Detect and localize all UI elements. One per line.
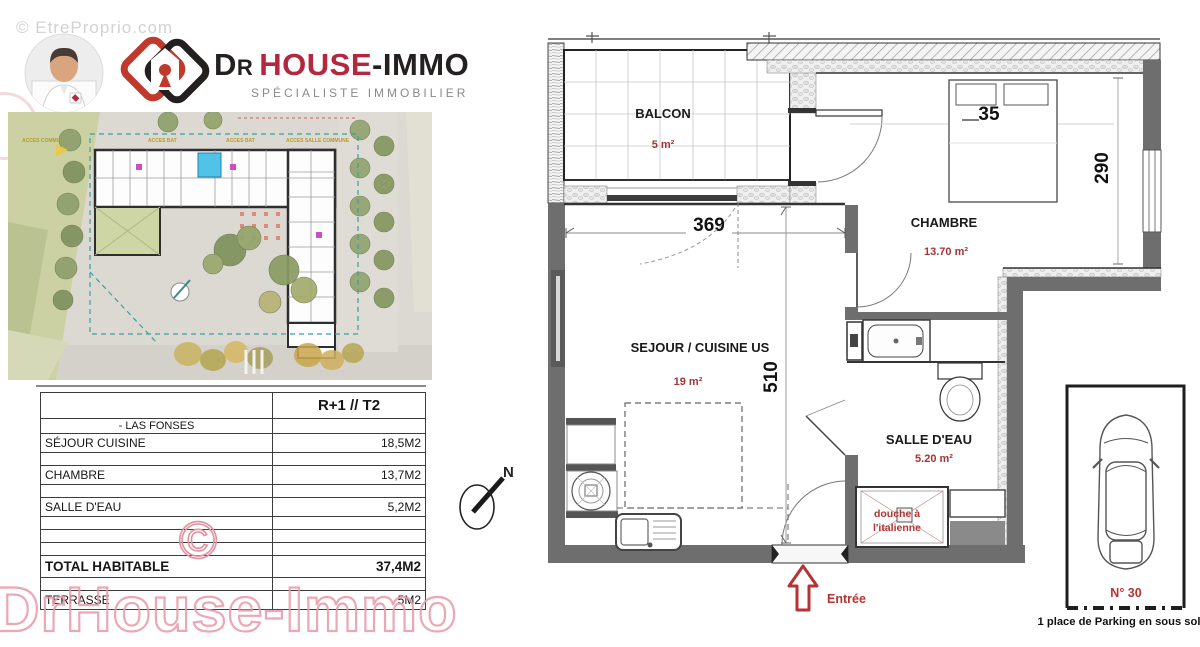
bed — [949, 80, 1057, 202]
dim-290: 290 — [1092, 152, 1113, 184]
row-sejour-label: SÉJOUR CUISINE — [41, 434, 273, 453]
bathroom-door — [806, 416, 845, 455]
watermark-drhouse: DrHouse-Immo — [0, 565, 512, 647]
brand-suffix: -IMMO — [372, 47, 469, 82]
site-label-salle-commune: ACCES SALLE COMMUNE — [286, 138, 350, 144]
brand-prefix: Dr — [214, 47, 253, 82]
site-label-bat1: ACCES BAT — [148, 138, 177, 144]
dim-369: 369 — [693, 215, 725, 236]
compass-north-label: N — [503, 464, 514, 481]
parking-space: N° 30 1 place de Parking en sous sol — [1038, 386, 1200, 628]
watermark-etreproprio: © EtreProprio.com — [16, 18, 173, 38]
entrance-opening — [772, 545, 848, 563]
shower-note-2: l'italienne — [873, 522, 921, 534]
living-label: SEJOUR / CUISINE US — [631, 340, 770, 355]
brand-name: DrHOUSE-IMMO — [214, 47, 469, 83]
shower: douche à l'italienne — [856, 487, 948, 547]
site-plan: ACCES COMMUN ACCES BAT ACCES BAT ACCES S… — [8, 112, 432, 380]
agent-avatar — [24, 33, 104, 113]
entrance-label: Entrée — [827, 592, 866, 606]
row-salledeau-value: 5,2M2 — [273, 498, 426, 517]
brand-subtitle: SPÉCIALISTE IMMOBILIER — [251, 86, 469, 100]
bedroom-balcony-door — [816, 110, 882, 116]
brand-logo-icon — [112, 28, 217, 114]
row-salledeau-label: SALLE D'EAU — [41, 498, 273, 517]
room-bedroom: 35 CHAMBRE 13.70 m² 290 — [850, 78, 1161, 268]
table-project: - LAS FONSES — [41, 419, 273, 434]
floor-plan: BALCON 5 m² — [540, 30, 1200, 647]
room-bathroom: SALLE D'EAU 5.20 m² douche à l'italienne — [845, 312, 1007, 547]
brand-text-block: DrHOUSE-IMMO SPÉCIALISTE IMMOBILIER — [214, 47, 469, 100]
row-sejour-value: 18,5M2 — [273, 434, 426, 453]
site-label-access-left: ACCES COMMUN — [22, 138, 64, 144]
site-label-bat2: ACCES BAT — [226, 138, 255, 144]
table-header-level: R+1 // T2 — [273, 393, 426, 419]
entrance-arrow-icon — [789, 566, 817, 610]
shower-note-1: douche à — [874, 508, 920, 520]
entrance-marker: Entrée — [789, 566, 866, 610]
dim-510: 510 — [761, 361, 782, 393]
bathroom-area: 5.20 m² — [915, 453, 953, 465]
brand-main: HOUSE — [259, 47, 372, 82]
divider — [36, 385, 426, 387]
wall-west — [548, 203, 565, 563]
living-area: 19 m² — [674, 376, 703, 388]
svg-text:DrHouse-Immo: DrHouse-Immo — [0, 575, 458, 645]
kitchen-unit-dashed — [625, 403, 742, 508]
svg-text:©: © — [179, 512, 217, 570]
highlighted-unit — [198, 153, 221, 177]
dim-35: 35 — [978, 104, 1000, 125]
row-chambre-label: CHAMBRE — [41, 466, 273, 485]
balcony-label: BALCON — [635, 106, 691, 121]
car-icon — [1093, 415, 1159, 569]
washbasin — [863, 320, 930, 362]
table-header-empty — [41, 393, 273, 419]
parking-caption: 1 place de Parking en sous sol — [1038, 616, 1200, 628]
balcony-area: 5 m² — [652, 139, 675, 151]
bedroom-window — [1143, 150, 1161, 232]
row-chambre-value: 13,7M2 — [273, 466, 426, 485]
parking-number: N° 30 — [1110, 586, 1141, 600]
toilet — [938, 363, 982, 421]
bathroom-label: SALLE D'EAU — [886, 432, 972, 447]
bedroom-door-arc — [857, 253, 911, 307]
bedroom-area: 13.70 m² — [924, 246, 968, 258]
sliding-door — [607, 195, 737, 201]
kitchen-sink — [616, 514, 681, 550]
compass: N — [445, 455, 530, 550]
entrance-door-arc — [782, 481, 846, 545]
bedroom-label: CHAMBRE — [911, 215, 978, 230]
real-estate-flyer: © EtreProprio.com DrHOUSE-IMMO SPÉCIALIS… — [0, 0, 1200, 647]
watermark-copyright-icon: © — [168, 512, 228, 572]
